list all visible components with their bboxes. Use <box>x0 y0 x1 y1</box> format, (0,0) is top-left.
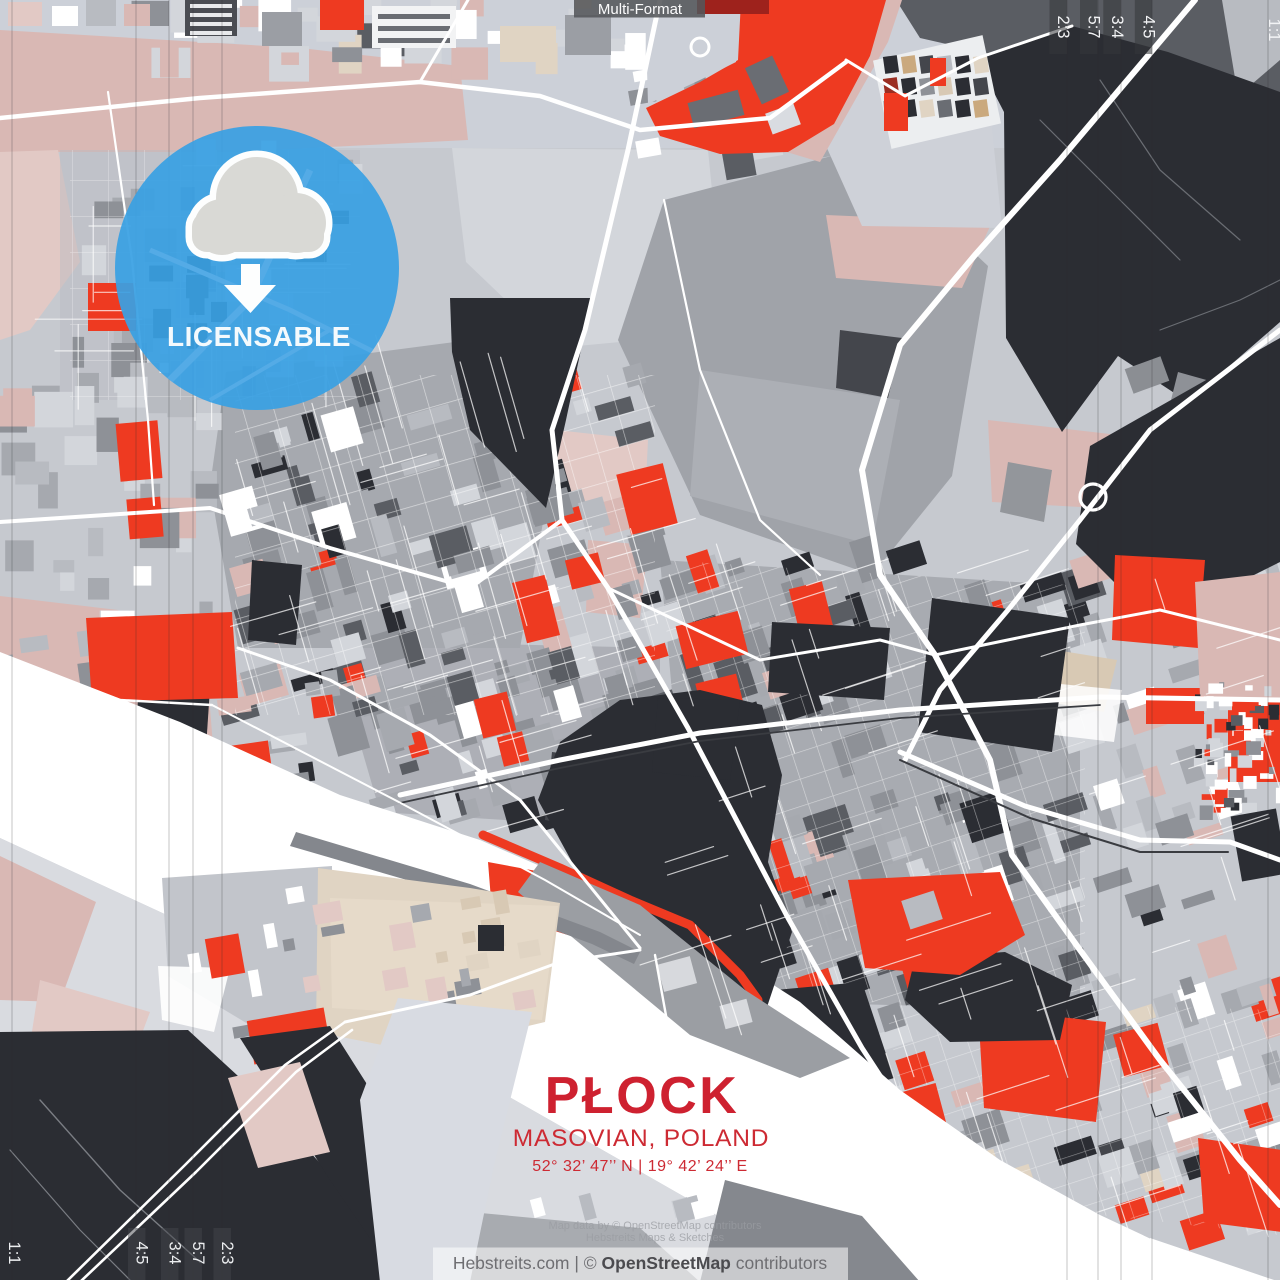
svg-text:5:7: 5:7 <box>189 1242 207 1265</box>
svg-text:5:7: 5:7 <box>1085 16 1103 39</box>
svg-text:4:5: 4:5 <box>133 1242 151 1265</box>
svg-text:3:4: 3:4 <box>1108 16 1126 39</box>
svg-text:2:3: 2:3 <box>218 1242 236 1265</box>
svg-text:Map data by © OpenStreetMap co: Map data by © OpenStreetMap contributors <box>549 1220 762 1232</box>
svg-text:52° 32’ 47’’ N | 19° 42’: 52° 32’ 47’’ N | 19° 42’ 24’’ E <box>532 1158 747 1175</box>
svg-text:1:1: 1:1 <box>5 1242 23 1265</box>
svg-text:Hebstreits.com | © OpenStreetM: Hebstreits.com | © OpenStreetMap contrib… <box>453 1253 828 1273</box>
svg-text:Multi-Format: Multi-Format <box>598 1 683 18</box>
svg-text:1:1: 1:1 <box>1265 19 1280 42</box>
svg-text:LICENSABLE: LICENSABLE <box>167 321 351 352</box>
svg-text:4:5: 4:5 <box>1140 16 1158 39</box>
svg-text:PŁOCK: PŁOCK <box>545 1067 740 1125</box>
svg-text:2:3: 2:3 <box>1054 16 1072 39</box>
svg-text:MASOVIAN, POLAND: MASOVIAN, POLAND <box>513 1125 770 1152</box>
svg-text:Hebstreits Maps & Sketches: Hebstreits Maps & Sketches <box>586 1232 725 1244</box>
svg-text:3:4: 3:4 <box>166 1242 184 1265</box>
